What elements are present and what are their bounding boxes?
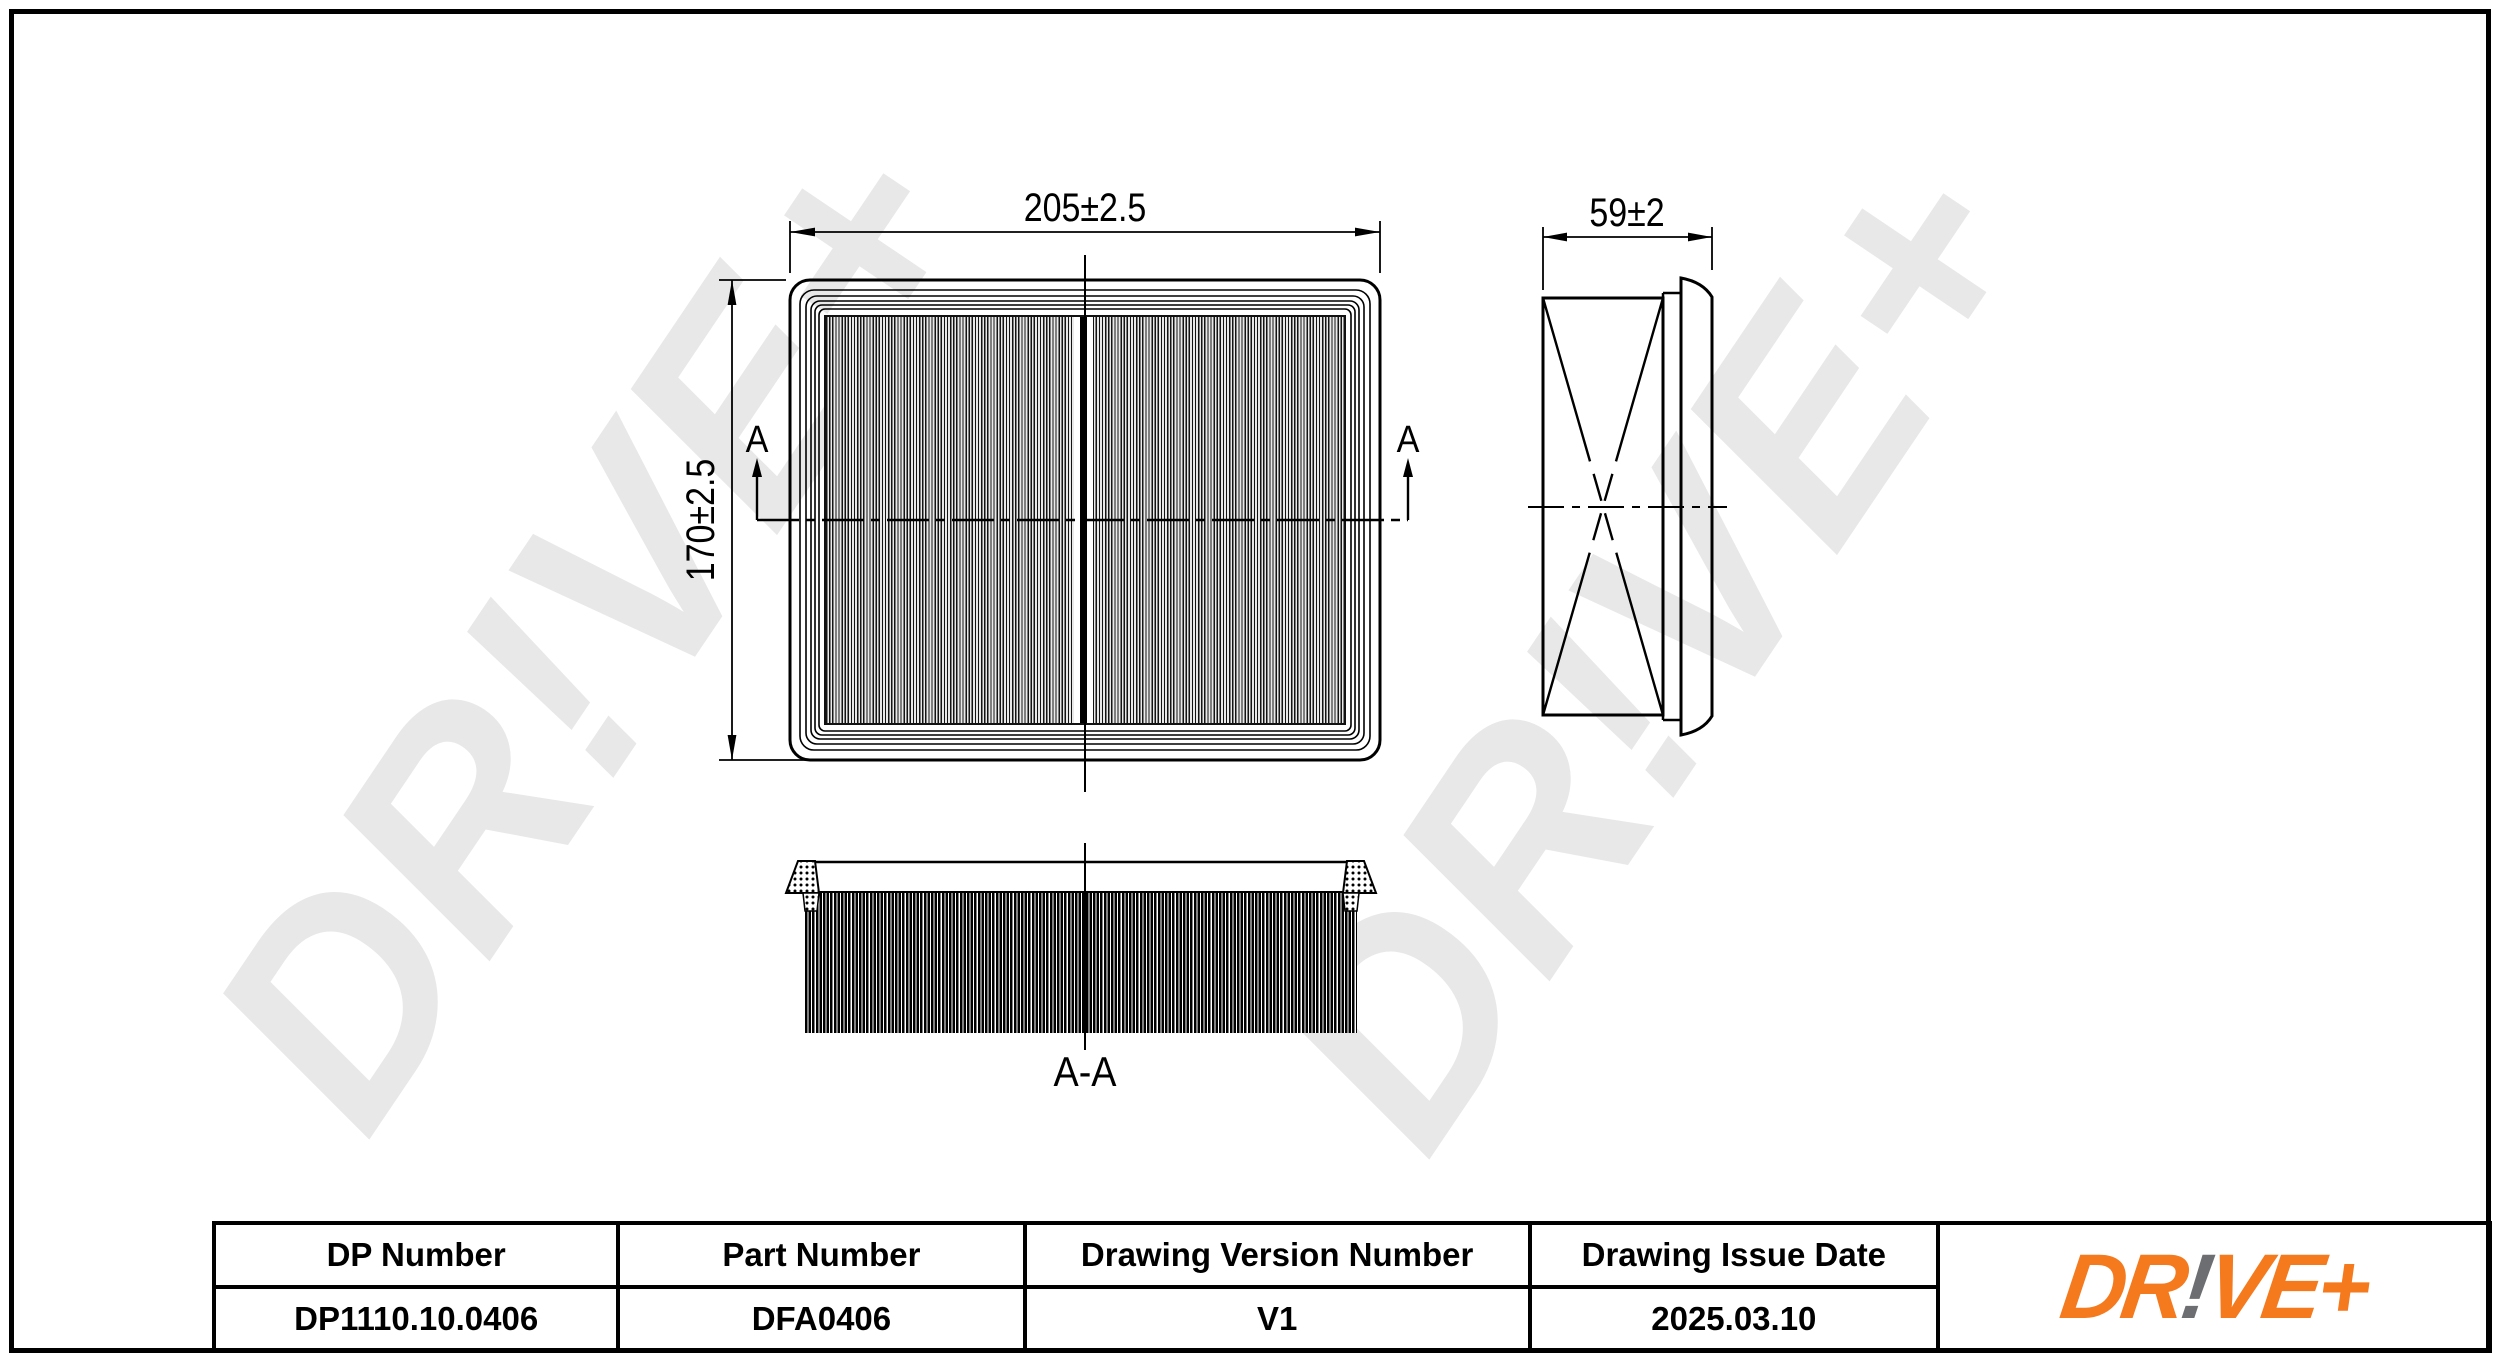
part-number-value: DFA0406 [620,1289,1022,1349]
dp-number-value: DP1110.10.0406 [216,1289,616,1349]
title-block-logo-cell: DR!VE+ [1940,1225,2488,1349]
title-block-col-part-number: Part Number DFA0406 [620,1225,1026,1349]
drawing-page: DR!VE+ DR!VE+ [0,0,2500,1362]
issue-date-header: Drawing Issue Date [1532,1225,1936,1289]
plan-width-dimension-text: 205±2.5 [1024,184,1147,229]
dp-number-header: DP Number [216,1225,616,1289]
section-arrow-left [752,458,762,477]
title-block-col-drawing-version: Drawing Version Number V1 [1027,1225,1532,1349]
section-view-label: A-A [1054,1049,1117,1095]
part-number-header: Part Number [620,1225,1022,1289]
drawing-version-header: Drawing Version Number [1027,1225,1528,1289]
title-block: DP Number DP1110.10.0406 Part Number DFA… [212,1221,2492,1353]
logo-segment-dr: DR [2055,1236,2190,1338]
section-arrow-right [1403,458,1413,477]
section-end-tab-left [803,893,819,911]
drawing-version-value: V1 [1027,1289,1528,1349]
title-block-col-dp-number: DP Number DP1110.10.0406 [216,1225,620,1349]
section-arrow-label-left: A [746,417,770,460]
section-end-cap-left [786,861,819,893]
side-width-dimension-text: 59±2 [1589,189,1664,234]
section-view [786,843,1376,1050]
section-arrow-label-right: A [1397,417,1421,460]
issue-date-value: 2025.03.10 [1532,1289,1936,1349]
drawing-linework: A A 205±2.5 170±2.5 [0,0,2500,1362]
side-view [1528,278,1727,735]
plan-height-dimension-text: 170±2.5 [677,459,722,582]
logo-segment-ve-plus: VE+ [2200,1236,2373,1338]
plan-view [752,255,1413,792]
section-end-tab-right [1343,893,1359,911]
section-end-cap-right [1343,861,1376,893]
drive-plus-logo: DR!VE+ [2056,1241,2373,1333]
title-block-col-issue-date: Drawing Issue Date 2025.03.10 [1532,1225,1940,1349]
